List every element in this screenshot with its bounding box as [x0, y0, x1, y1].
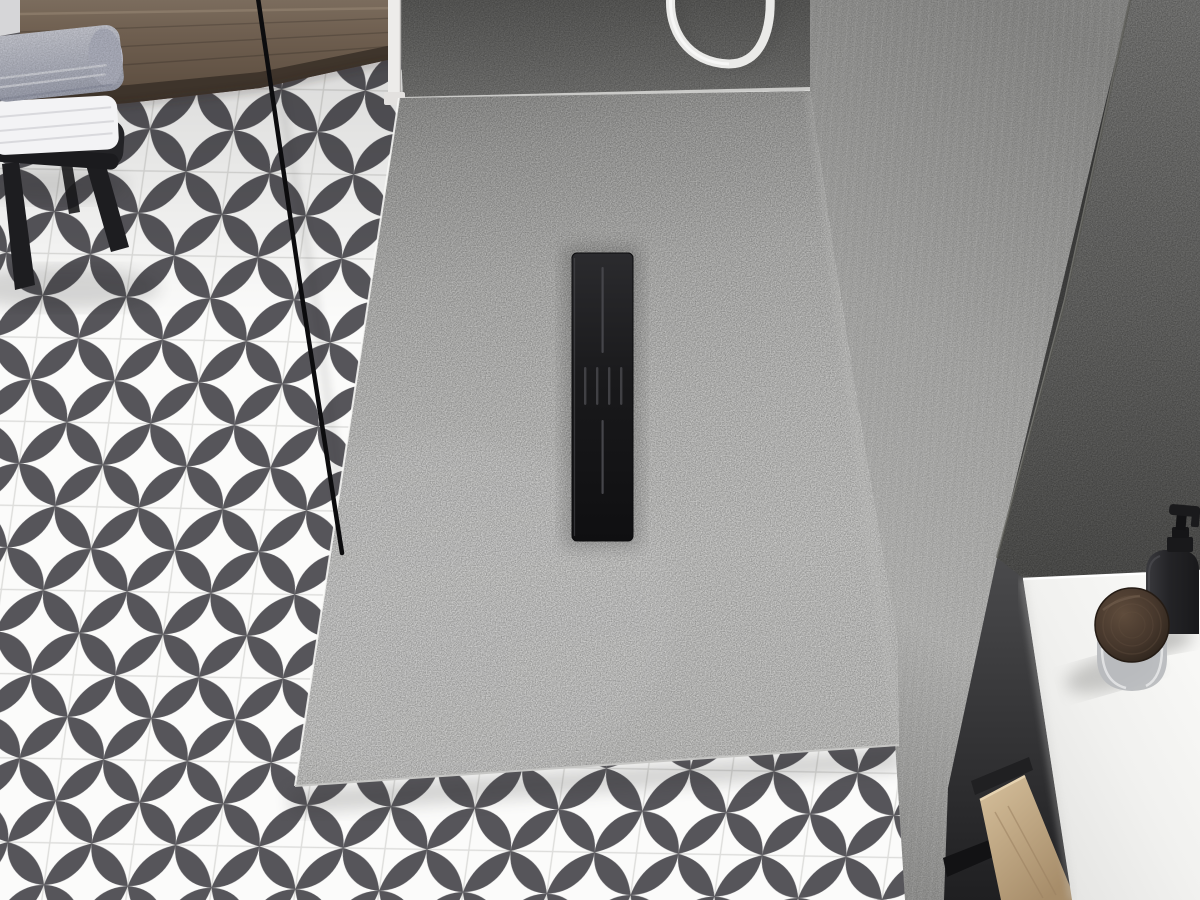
back-wall	[399, 0, 810, 104]
pump-spout	[1191, 512, 1200, 528]
drain-groove-bottom	[602, 420, 604, 494]
back-wall-texture	[399, 0, 810, 99]
scene-canvas	[0, 0, 1200, 900]
wooden-jar	[1095, 588, 1169, 691]
bathroom-scene	[0, 0, 1200, 900]
towel-texture	[0, 24, 125, 103]
towel-stack	[0, 24, 126, 156]
towel-white	[0, 95, 119, 156]
linear-drain	[563, 246, 641, 548]
pump-stem	[1175, 514, 1186, 530]
jar-wood-lid	[1095, 588, 1169, 662]
towel-top	[0, 24, 126, 104]
trim-post-face	[388, 0, 401, 98]
dispenser-collar	[1167, 537, 1193, 552]
drain-groove-top	[602, 267, 604, 353]
